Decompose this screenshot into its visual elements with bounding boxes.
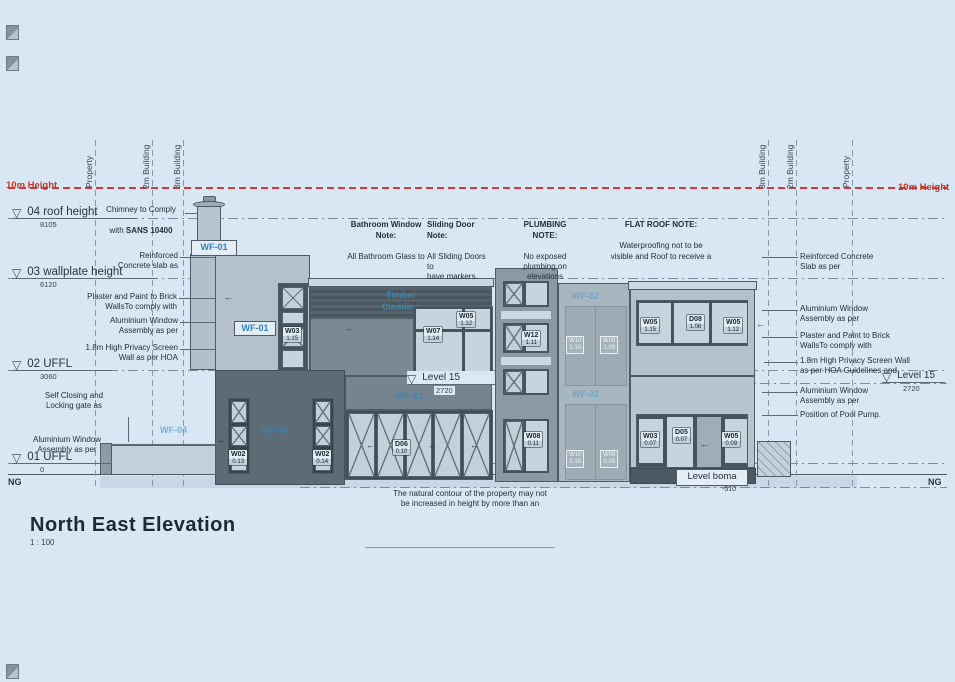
swing-arrow-icon: ← <box>345 324 354 332</box>
window-frame-label: WF-01 <box>234 321 276 336</box>
level15-marker-center: ▽ Level 15 <box>407 371 495 385</box>
aluminium-window-note-left: Aluminium Window Assembly as per <box>90 316 178 337</box>
leader-line <box>180 349 215 350</box>
window-pane <box>505 325 523 351</box>
window-frame-label: WF-02 <box>572 291 599 301</box>
window-tag-white: W09 1.09 <box>600 336 618 354</box>
window-tag: W12 1.11 <box>522 331 540 346</box>
window-pane <box>231 426 247 446</box>
plaster-note-right: Plaster and Paint to Brick WallsTo compl… <box>800 331 930 352</box>
mullion <box>595 307 596 385</box>
leader-line <box>762 337 798 338</box>
door-tag: D06 0.10 <box>393 440 410 455</box>
contour-note: The natural contour of the property may … <box>355 489 585 510</box>
window-pane <box>416 309 462 329</box>
window-tag: W03 1.15 <box>283 327 301 342</box>
plumbing-note: PLUMBING NOTE: No exposed plumbing on el… <box>505 210 585 283</box>
slab-strip <box>501 311 551 319</box>
height-limit-label-right: 10m Height <box>898 182 949 194</box>
leader-line <box>180 322 215 323</box>
window-tag: W03 0.07 <box>641 432 659 447</box>
tower-window-row <box>503 281 549 307</box>
window-frame-label: WF-04 <box>160 425 187 435</box>
corner-mark-icon <box>6 664 19 679</box>
corner-mark-icon <box>6 25 19 40</box>
tower-window-row <box>503 369 549 395</box>
window-frame-label: WF-03 <box>262 425 289 435</box>
leader-line <box>762 415 798 416</box>
window-pane <box>315 401 331 423</box>
aluminium-window-note-left2: Aluminium Window Assembly as per <box>8 435 126 456</box>
level-triangle-icon: ▽ <box>12 268 21 278</box>
window-frame-label: WF-03 <box>396 391 423 401</box>
level-triangle-icon: ▽ <box>407 374 416 384</box>
3m-building-line-left <box>183 140 184 490</box>
privacy-screen-note-right: 1.8m High Privacy Screen Wall as per HOA… <box>800 356 942 377</box>
2m-building-line-left <box>152 140 153 490</box>
mullion <box>595 405 596 479</box>
plaster-note-left: Plaster and Paint to Brick WallsTo compl… <box>70 292 177 313</box>
window-pane <box>231 401 247 423</box>
slide-arrow-icon: ← <box>470 441 479 449</box>
leader-line <box>179 298 215 299</box>
drawing-scale: 1 : 100 <box>30 538 236 547</box>
level-triangle-icon: ▽ <box>12 208 21 218</box>
level-value-uffl2: 3060 <box>40 372 57 381</box>
window-tag: W05 1.12 <box>724 318 742 333</box>
slab-strip <box>501 357 551 365</box>
ng-label-right: NG <box>928 477 942 487</box>
3m-building-line-right <box>768 140 769 490</box>
property-label-right: Property <box>841 138 851 188</box>
window-tag-white: W10 1.10 <box>566 336 584 354</box>
slide-arrow-icon: ← <box>366 441 375 449</box>
window-pane <box>282 312 304 324</box>
aluminium-window-note-right: Aluminium Window Assembly as per <box>800 304 912 325</box>
reinforced-slab-note-left: Reinforced Concrete slab as <box>88 251 178 272</box>
swing-arrow-icon: ← <box>756 320 765 328</box>
swing-arrow-icon: ← <box>224 293 233 301</box>
pool-pump-note: Position of Pool Pump. <box>800 410 920 420</box>
window-frame-label: WF-02 <box>572 389 599 399</box>
divider-line <box>365 547 555 548</box>
leader-line <box>128 417 129 442</box>
window-pane <box>526 371 547 393</box>
aluminium-window-note-right2: Aluminium Window Assembly as per <box>800 386 912 407</box>
ng-label-left: NG <box>8 477 22 487</box>
level-boma-value: -510 <box>722 486 736 493</box>
gate-note: Self Closing and Locking gate as <box>24 391 124 412</box>
window-pane <box>505 421 523 471</box>
window-tag: W07 1.14 <box>424 327 442 342</box>
window-pane <box>505 371 523 393</box>
slide-arrow-icon: ← <box>700 440 709 448</box>
2m-building-line-right <box>796 140 797 490</box>
property-label-left: Property <box>84 138 94 188</box>
chimney-note: Chimney to Comply with SANS 10400 <box>95 195 187 237</box>
door-tag: D05 0.07 <box>673 428 690 443</box>
drawing-title: North East Elevation <box>30 514 236 537</box>
leader-line <box>762 310 798 311</box>
level-value-wallplate: 6120 <box>40 280 57 289</box>
window-tag-white: W09 0.09 <box>600 450 618 468</box>
drawing-title-block: North East Elevation 1 : 100 <box>30 514 236 547</box>
level-triangle-icon: ▽ <box>12 360 21 370</box>
window-tag: W08 0.11 <box>524 432 542 447</box>
window-pane <box>282 350 304 368</box>
window-tag: W05 1.12 <box>457 312 475 327</box>
window-pane <box>526 283 547 305</box>
corner-mark-icon <box>6 56 19 71</box>
door-pane <box>434 413 461 477</box>
flat-roof-note: FLAT ROOF NOTE: Waterproofing not to be … <box>590 210 732 262</box>
2m-building-label-left: 2m Building <box>141 134 151 189</box>
window-tag-white: W10 0.10 <box>566 450 584 468</box>
leader-line <box>180 257 215 258</box>
level-value-uffl1: 0 <box>40 465 44 474</box>
window-tag: W05 1.15 <box>641 318 659 333</box>
window-tag: W05 0.09 <box>722 432 740 447</box>
chimney-flue <box>203 196 216 202</box>
leader-line <box>762 257 798 258</box>
window-pane <box>465 332 490 372</box>
glazed-doors-lower <box>565 404 627 480</box>
pool-pump-screen <box>757 441 791 477</box>
reinforced-slab-note-right: Reinforced Concrete Slab as per <box>800 252 912 273</box>
window-pane <box>505 283 523 305</box>
slide-arrow-icon: ← <box>428 441 437 449</box>
boma-level-line <box>300 487 947 488</box>
leader-line <box>764 362 798 363</box>
2m-building-label-right: 2m Building <box>785 134 795 189</box>
height-limit-label-left: 10m Height <box>6 180 57 192</box>
window-tag: W02 0.14 <box>313 450 331 465</box>
privacy-screen-note-left: 1.8m High Privacy Screen Wall as per HOA <box>68 343 178 364</box>
3m-building-label-left: 3m Building <box>172 134 182 189</box>
sliding-door-note: Sliding Door Note: All Sliding Doors to … <box>427 210 515 283</box>
elevation-sheet: Property 2m Building 3m Building 3m Buil… <box>0 0 955 682</box>
level15-value-center: 2720 <box>434 386 455 395</box>
swing-arrow-icon: ← <box>217 436 226 444</box>
level-boma-label: Level boma <box>676 469 748 486</box>
door-tag: D08 1.08 <box>687 315 704 330</box>
leader-line <box>762 392 798 393</box>
window-pane <box>315 426 331 446</box>
window-tag: W02 0.13 <box>229 450 247 465</box>
level-value-roof: 8105 <box>40 220 57 229</box>
window-pane <box>282 287 304 309</box>
center-tower <box>495 268 558 482</box>
3m-building-label-right: 3m Building <box>757 134 767 189</box>
bathroom-window-note: Bathroom Window Note: All Bathroom Glass… <box>330 210 442 262</box>
window-frame-label: WF-01 <box>191 240 237 256</box>
